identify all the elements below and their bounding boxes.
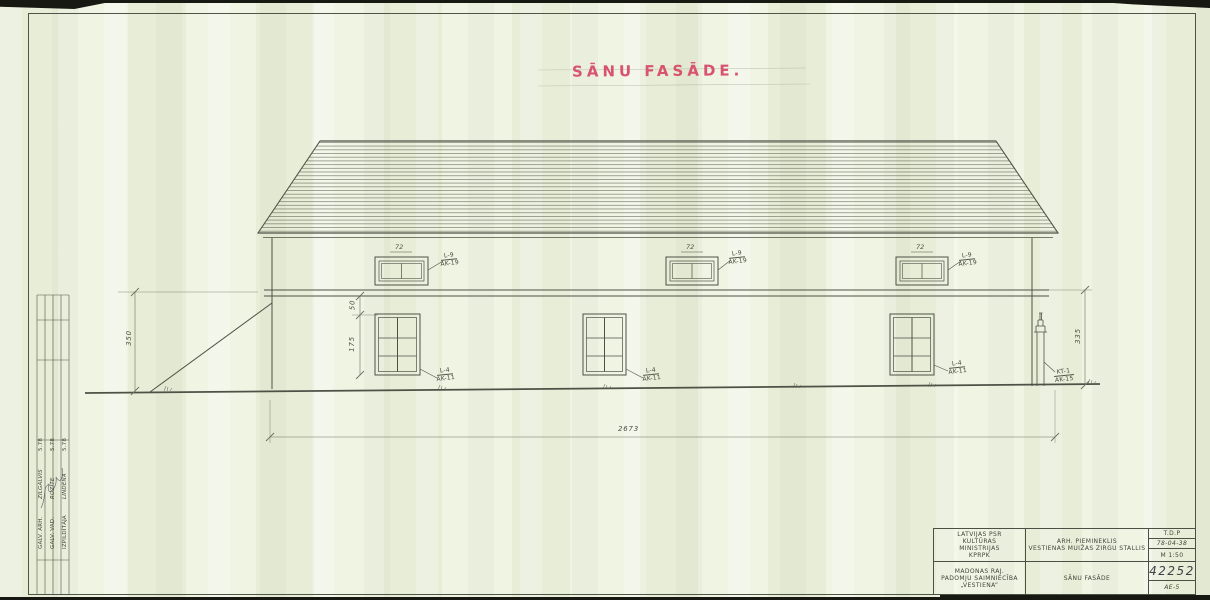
title-block-client: MADONAS RAJ. PADOMJU SAIMNIECĪBA „VESTIE… bbox=[934, 562, 1026, 594]
large-window-label: L-4 AK-11 bbox=[435, 366, 455, 383]
title-block-date: 78-04-38 bbox=[1149, 539, 1195, 549]
dim-left-height: 350 bbox=[125, 330, 133, 346]
signature-row: GALV. ARH. ZILGALVIS 5.78 bbox=[35, 430, 47, 595]
ground-line bbox=[85, 384, 1100, 393]
dim-window-height: 175 bbox=[348, 336, 356, 352]
signature-block: GALV. ARH. ZILGALVIS 5.78 GALV. VAD. ROZ… bbox=[35, 430, 72, 595]
title-block: LATVIJAS PSR KULTŪRAS MINISTRIJAS KPRPK … bbox=[933, 528, 1196, 595]
dim-small-window-width: 72 bbox=[916, 243, 924, 251]
title-block-sheet-title: SĀNU FASĀDE bbox=[1026, 562, 1149, 594]
title-block-sheet-code: AE-5 bbox=[1149, 581, 1195, 594]
signature-row: IZPILDĪTĀJA LINDENA 5.78 bbox=[59, 430, 71, 595]
dim-total-length: 2673 bbox=[618, 425, 639, 433]
small-window-label: L-9 AK-19 bbox=[439, 251, 459, 268]
downpipe bbox=[1034, 313, 1055, 386]
large-window-label: L-4 AK-11 bbox=[641, 366, 661, 383]
title-block-number: 42252 bbox=[1149, 562, 1195, 581]
roof bbox=[258, 141, 1058, 238]
terrain-slope bbox=[150, 303, 272, 392]
dim-small-window-width: 72 bbox=[395, 243, 403, 251]
drawing-title: SĀNU FASĀDE. bbox=[572, 61, 743, 80]
title-block-monument: ARH. PIEMINEKLIS VESTIENAS MUIŽAS ZIRGU … bbox=[1026, 529, 1149, 562]
facade-linework bbox=[0, 0, 1210, 600]
dim-small-window-width: 72 bbox=[686, 243, 694, 251]
small-window-label: L-9 AK-19 bbox=[727, 249, 747, 266]
lower-windows bbox=[375, 314, 948, 378]
drawing-sheet: SĀNU FASĀDE. 2673 350 335 50 175 72 72 7… bbox=[0, 0, 1210, 600]
large-window-label: L-4 AK-11 bbox=[947, 359, 967, 376]
dim-sill-offset: 50 bbox=[348, 300, 356, 311]
title-block-stage: T.D.P bbox=[1149, 529, 1195, 539]
title-block-organization: LATVIJAS PSR KULTŪRAS MINISTRIJAS KPRPK bbox=[934, 529, 1026, 562]
upper-windows bbox=[375, 252, 961, 285]
signature-row: GALV. VAD. ROZĪTE 5.78 bbox=[47, 430, 59, 595]
small-window-label: L-9 AK-19 bbox=[957, 251, 977, 268]
dim-right-height: 335 bbox=[1074, 328, 1082, 344]
downpipe-label: KT-1 AK-15 bbox=[1053, 367, 1074, 384]
title-block-scale: M 1:50 bbox=[1149, 549, 1195, 562]
